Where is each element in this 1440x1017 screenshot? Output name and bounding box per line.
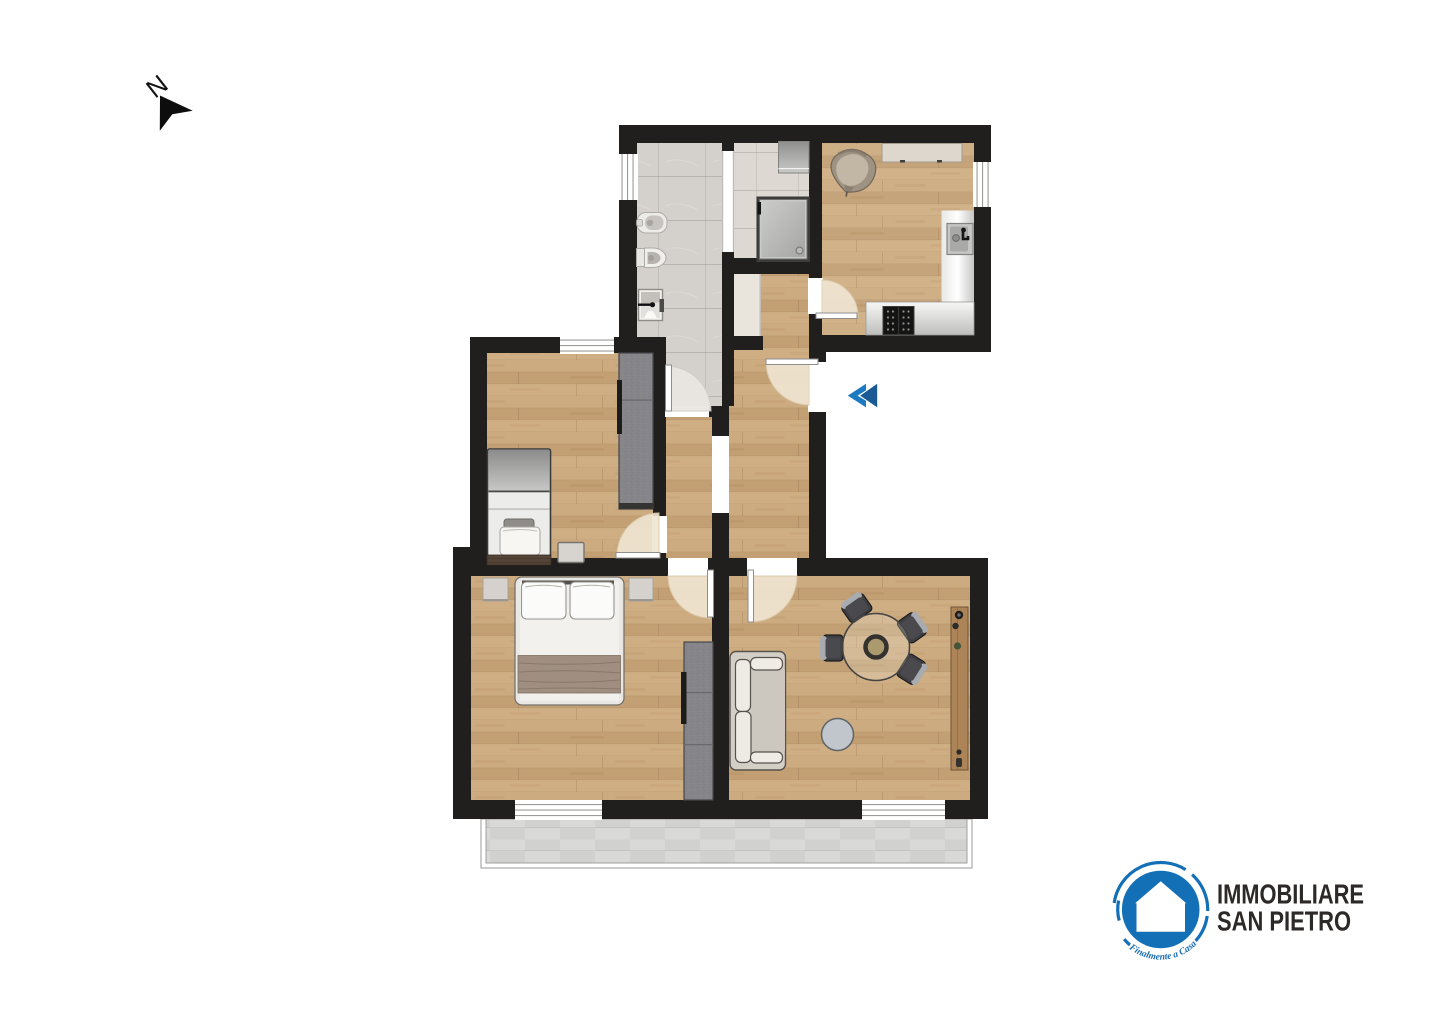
svg-text:SAN PIETRO: SAN PIETRO — [1217, 906, 1351, 937]
